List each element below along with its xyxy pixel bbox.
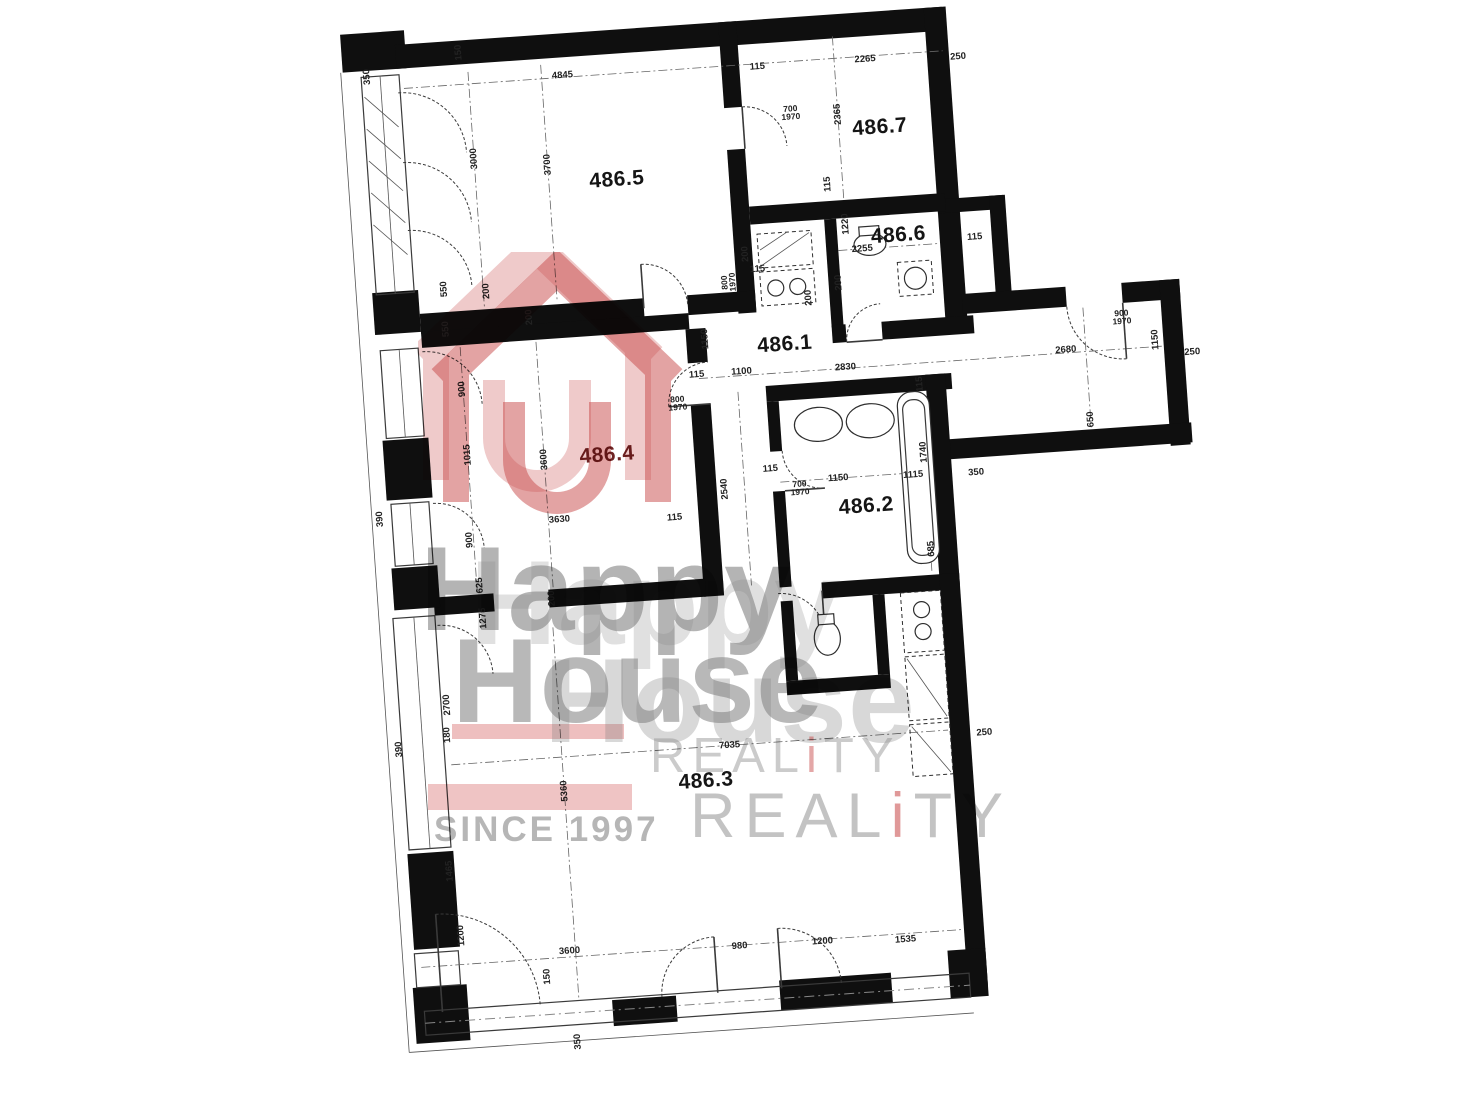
plan-rotated-canvas: 3501504845115226525030003700550200700 19… (293, 0, 1247, 1109)
door-arcs (378, 43, 1168, 1012)
walls (340, 0, 1231, 1044)
toilet-icon (813, 620, 841, 656)
floor-plan-drawing (293, 0, 1247, 1109)
fixtures (757, 222, 967, 785)
kitchen-counter (900, 590, 944, 653)
floor-plan-scan: 3501504845115226525030003700550200700 19… (0, 0, 1466, 1080)
washbasin-icon (793, 406, 843, 443)
washbasin-icon (845, 402, 895, 439)
